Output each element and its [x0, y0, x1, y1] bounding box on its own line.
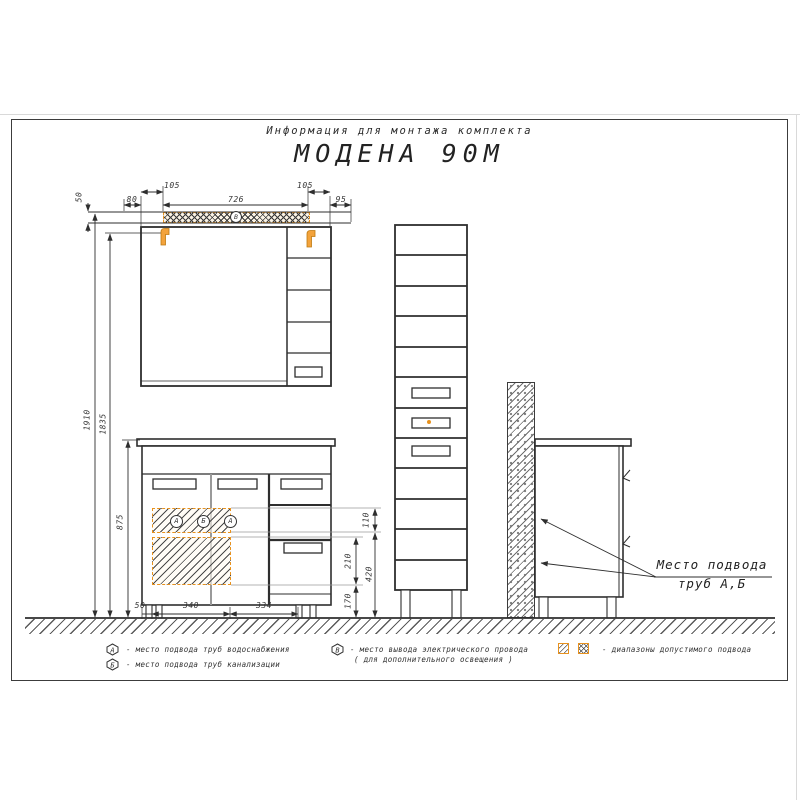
- dim-170: 170: [344, 593, 353, 609]
- dim-726: 726: [228, 195, 244, 204]
- dim-210: 210: [344, 553, 353, 569]
- dim-1835: 1835: [99, 413, 108, 434]
- legend-text-v2: ( для дополнительного освещения ): [354, 655, 513, 664]
- dim-105-left: 105: [164, 181, 180, 190]
- model-title: МОДЕНА 90М: [11, 139, 788, 168]
- legend-symbol-a-icon: А: [106, 643, 119, 656]
- dim-1910: 1910: [83, 409, 92, 430]
- dim-334: 334: [256, 601, 272, 610]
- legend-symbol-b-icon: Б: [106, 658, 119, 671]
- legend-symbol-v-icon: В: [331, 643, 344, 656]
- legend-text-v: - место вывода электрического провода: [350, 645, 528, 654]
- sheet-subtitle: Информация для монтажа комплекта: [11, 125, 788, 137]
- drawing-sheet: Информация для монтажа комплекта МОДЕНА …: [0, 0, 800, 800]
- marker-zone-3: А: [224, 515, 237, 528]
- marker-electrical: В: [230, 211, 242, 223]
- legend-text-b: - место подвода труб канализации: [126, 660, 280, 669]
- svg-text:А: А: [109, 647, 114, 655]
- hatch-swatch-diagonal-icon: [558, 643, 569, 654]
- dim-875: 875: [116, 514, 125, 530]
- hatch-swatch-cross-icon: [578, 643, 589, 654]
- supply-zone-upper: [152, 508, 231, 533]
- dim-50-top: 50: [75, 192, 84, 203]
- supply-zone-lower: [152, 537, 231, 585]
- pipe-note-line2: труб А,Б: [648, 576, 776, 591]
- dim-340: 340: [183, 601, 199, 610]
- dim-50-bottom: 50: [135, 601, 146, 610]
- dim-420: 420: [365, 566, 374, 582]
- page-edge-right: [796, 114, 797, 800]
- marker-zone-2: Б: [197, 515, 210, 528]
- dim-95: 95: [336, 195, 347, 204]
- wall-section-hatch: [507, 382, 535, 618]
- dim-105-right: 105: [297, 181, 313, 190]
- legend-text-a: - место подвода труб водоснабжения: [126, 645, 290, 654]
- drawer-marker-dot: [427, 420, 431, 424]
- pipe-note-line1: Место подвода: [648, 557, 776, 572]
- dim-80: 80: [127, 195, 138, 204]
- floor-hatch: [25, 619, 775, 634]
- dim-110: 110: [362, 512, 371, 528]
- svg-text:В: В: [335, 647, 339, 655]
- pipe-supply-note: Место подвода труб А,Б: [648, 557, 776, 591]
- marker-zone-1: А: [170, 515, 183, 528]
- page-edge-top: [0, 114, 800, 115]
- legend-text-ranges: - диапазоны допустимого подвода: [602, 645, 751, 654]
